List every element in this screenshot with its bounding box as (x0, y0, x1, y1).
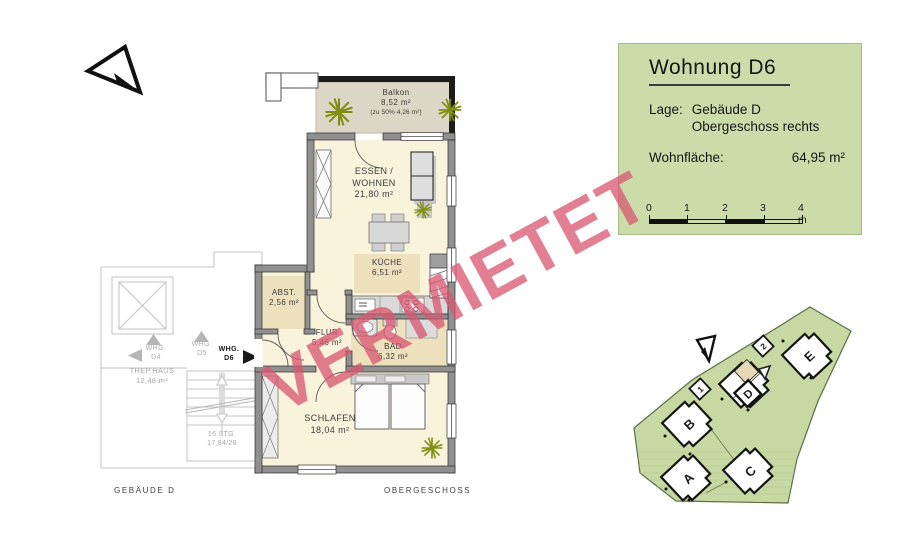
footer-floor-label: OBERGESCHOSS (384, 486, 471, 495)
location-floor: Obergeschoss rechts (692, 119, 820, 134)
floorplan-page: E D B A C 1 (0, 0, 900, 540)
room-name: KÜCHE (372, 258, 402, 267)
room-name: WOHNEN (352, 178, 395, 188)
whg-prefix: WHG. (146, 345, 167, 352)
label-treppenhaus: TREP.HAUS 12,48 m² (130, 366, 175, 386)
info-location-row: Lage: Gebäude D Obergeschoss rechts (649, 101, 819, 135)
living-plant (414, 201, 432, 218)
whg-id: D5 (197, 350, 207, 357)
room-name: Balkon (383, 88, 410, 97)
trephaus-area: 12,48 m² (136, 376, 168, 385)
info-title: Wohnung D6 (649, 56, 790, 86)
site-plan: E D B A C 1 (630, 307, 851, 505)
room-area: 18,04 m² (311, 425, 350, 435)
balcony (266, 73, 461, 133)
room-area: 2,56 m² (269, 298, 299, 307)
balcony-plant-icon (439, 99, 462, 122)
label-whg-d5: WHG. D5 (192, 341, 213, 359)
balcony-plant-icon (326, 99, 353, 126)
room-note: (zu 50% 4,26 m²) (370, 109, 421, 117)
room-area: 8,52 m² (381, 98, 411, 107)
location-building: Gebäude D (692, 102, 761, 117)
whg-id: D4 (151, 354, 161, 361)
trephaus-name: TREP.HAUS (130, 366, 175, 375)
whg-d4-up-arrow-icon (146, 334, 161, 345)
location-value: Gebäude D Obergeschoss rechts (692, 101, 820, 135)
site-north-arrow-icon (697, 336, 715, 361)
scale-tick-label: 2 (722, 202, 728, 214)
whg-d4-left-arrow-icon (128, 349, 142, 362)
room-label-balkon: Balkon 8,52 m² (zu 50% 4,26 m²) (370, 88, 421, 117)
area-value: 64,95 m² (792, 150, 845, 165)
scale-tick-label: 3 (760, 202, 766, 214)
plant-icon (414, 201, 431, 218)
sofa (411, 152, 436, 204)
room-label-abst: ABST. 2,56 m² (269, 288, 299, 309)
room-label-wohnen: ESSEN / WOHNEN 21,80 m² (352, 166, 395, 201)
whg-prefix: WHG. (192, 341, 213, 348)
footer-building-label: GEBÄUDE D (114, 486, 176, 495)
elevator (112, 277, 173, 334)
label-whg-d4: WHG. D4 (146, 345, 167, 363)
room-area: 21,80 m² (355, 189, 394, 199)
room-name: ESSEN / (355, 166, 393, 176)
bedroom-plant-icon (422, 438, 443, 459)
whg-prefix: WHG. (219, 346, 240, 353)
room-name: ABST. (272, 288, 296, 297)
stairs-dim: 17,84/28 (207, 440, 237, 447)
living-wardrobe (316, 150, 331, 218)
north-arrow-icon (88, 47, 140, 92)
